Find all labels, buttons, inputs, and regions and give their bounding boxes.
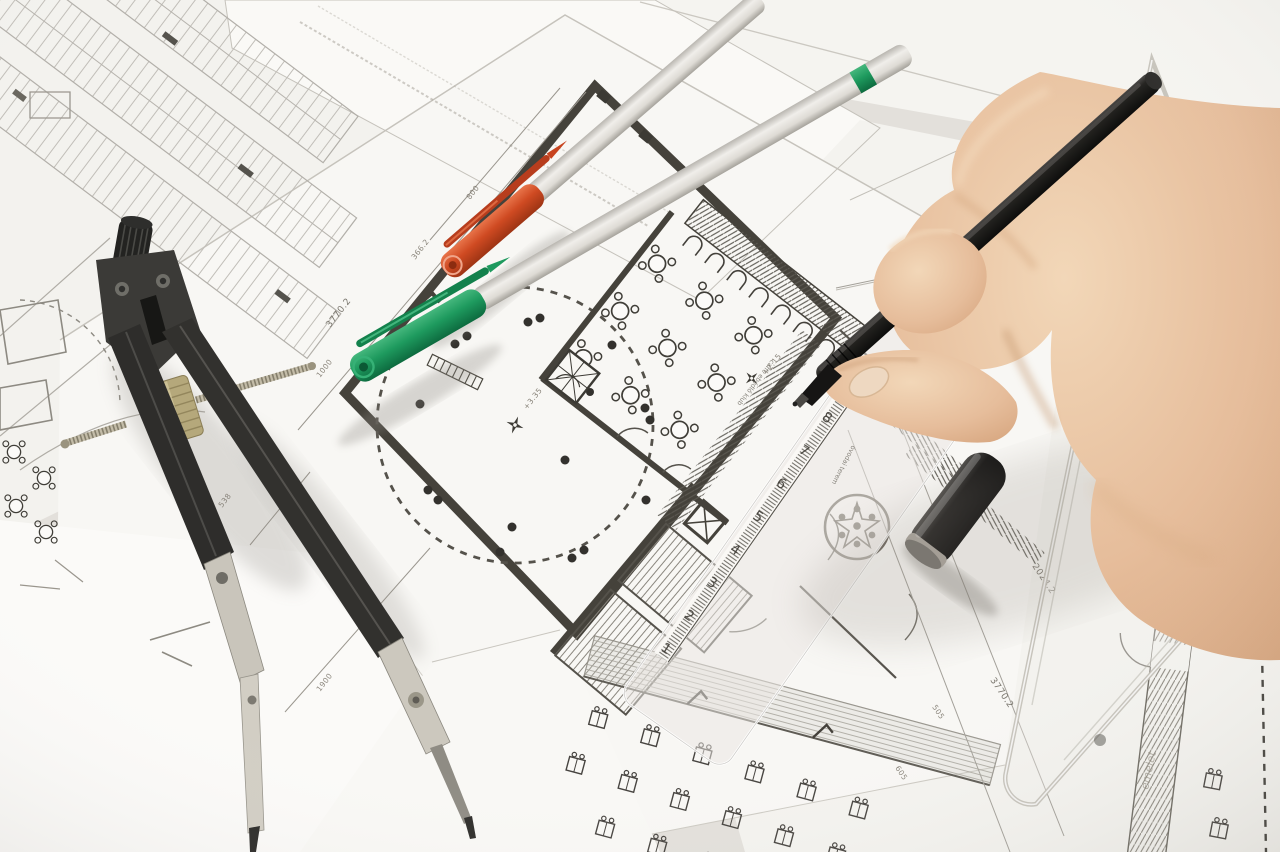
photo-canvas: +3.35 3770.2 1000 538 1900 800 366.2 +2.… [0, 0, 1280, 852]
photo-vignette [0, 0, 1280, 852]
photo-architect-drafting: +3.35 3770.2 1000 538 1900 800 366.2 +2.… [0, 0, 1280, 852]
